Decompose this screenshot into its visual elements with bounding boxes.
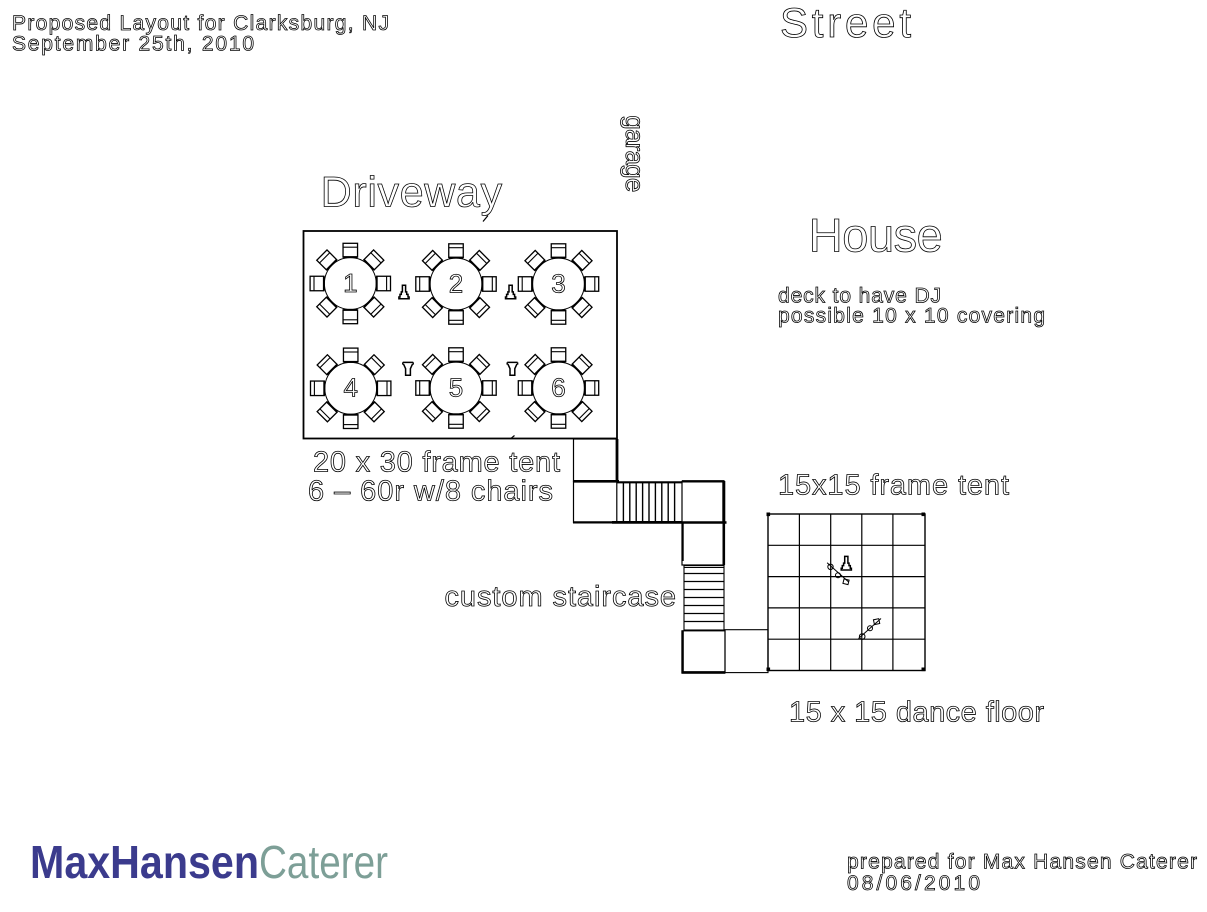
svg-text:custom staircase: custom staircase [445,581,677,613]
svg-text:5: 5 [449,372,463,402]
svg-text:Proposed Layout for Clarksburg: Proposed Layout for Clarksburg, NJ [12,12,389,35]
svg-text:1: 1 [343,268,357,298]
svg-text:possible 10 x 10 covering: possible 10 x 10 covering [778,305,1045,328]
svg-text:3: 3 [551,268,565,298]
svg-text:MaxHansen: MaxHansen [30,836,259,888]
svg-text:September 25th, 2010: September 25th, 2010 [12,32,254,55]
svg-text:6: 6 [551,372,565,402]
svg-text:15x15 frame tent: 15x15 frame tent [778,469,1009,501]
svg-text:2: 2 [449,268,463,298]
svg-text:House: House [809,209,943,262]
svg-text:4: 4 [343,373,357,403]
svg-text:Driveway: Driveway [321,169,503,217]
svg-text:20 x 30 frame tent: 20 x 30 frame tent [313,446,560,478]
svg-text:Street: Street [780,0,911,46]
svg-text:Caterer: Caterer [259,836,388,888]
svg-text:6 – 60r w/8 chairs: 6 – 60r w/8 chairs [308,476,553,508]
svg-text:prepared for Max Hansen Catere: prepared for Max Hansen Caterer [847,851,1197,874]
svg-text:15 x 15 dance floor: 15 x 15 dance floor [789,697,1044,729]
svg-text:garage: garage [620,115,650,192]
svg-text:08/06/2010: 08/06/2010 [847,872,980,895]
